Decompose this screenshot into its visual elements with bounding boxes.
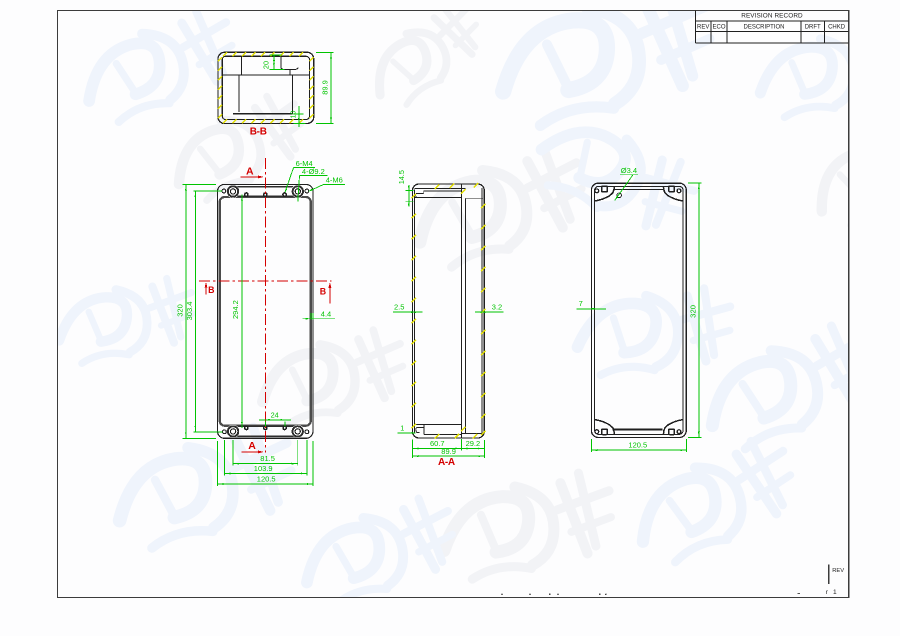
svg-text:A-A: A-A: [438, 457, 455, 468]
svg-text:B: B: [320, 287, 326, 297]
svg-text:4.4: 4.4: [321, 309, 331, 318]
svg-text:A: A: [246, 165, 254, 177]
svg-text:REV: REV: [697, 25, 709, 31]
svg-text:303.4: 303.4: [185, 302, 194, 321]
svg-text:320: 320: [175, 304, 184, 317]
svg-text:REV: REV: [832, 568, 844, 574]
svg-text:Ø3.4: Ø3.4: [621, 166, 637, 175]
svg-text:120.5: 120.5: [628, 441, 647, 450]
svg-text:1: 1: [833, 589, 837, 596]
svg-text:320: 320: [689, 305, 698, 318]
svg-text:1: 1: [400, 424, 404, 433]
svg-text:3.2: 3.2: [492, 302, 502, 311]
svg-text:REVISION RECORD: REVISION RECORD: [741, 13, 803, 20]
svg-text:10: 10: [290, 111, 297, 119]
svg-text:CHKD: CHKD: [828, 25, 846, 31]
svg-text:B-B: B-B: [250, 126, 267, 137]
svg-text:4-M6: 4-M6: [326, 176, 343, 185]
svg-text:4-Ø9.2: 4-Ø9.2: [302, 167, 325, 176]
svg-text:20: 20: [261, 61, 270, 69]
svg-text:81.5: 81.5: [260, 454, 275, 463]
svg-text:2.5: 2.5: [394, 302, 404, 311]
svg-text:89.9: 89.9: [320, 80, 329, 95]
svg-text:DRFT: DRFT: [805, 25, 821, 31]
svg-text:r: r: [826, 589, 829, 596]
svg-text:103.9: 103.9: [254, 464, 273, 473]
svg-text:120.5: 120.5: [257, 475, 276, 484]
svg-text:A: A: [248, 440, 256, 452]
svg-text:294.2: 294.2: [231, 300, 240, 319]
svg-text:24: 24: [271, 410, 279, 419]
svg-text:ECO: ECO: [712, 25, 725, 31]
svg-text:DESCRIPTION: DESCRIPTION: [743, 25, 784, 31]
svg-text:7: 7: [579, 299, 583, 308]
svg-text:B: B: [208, 285, 214, 295]
svg-text:89.9: 89.9: [441, 447, 456, 456]
svg-text:14.5: 14.5: [397, 170, 406, 184]
svg-text:29.2: 29.2: [466, 439, 481, 448]
